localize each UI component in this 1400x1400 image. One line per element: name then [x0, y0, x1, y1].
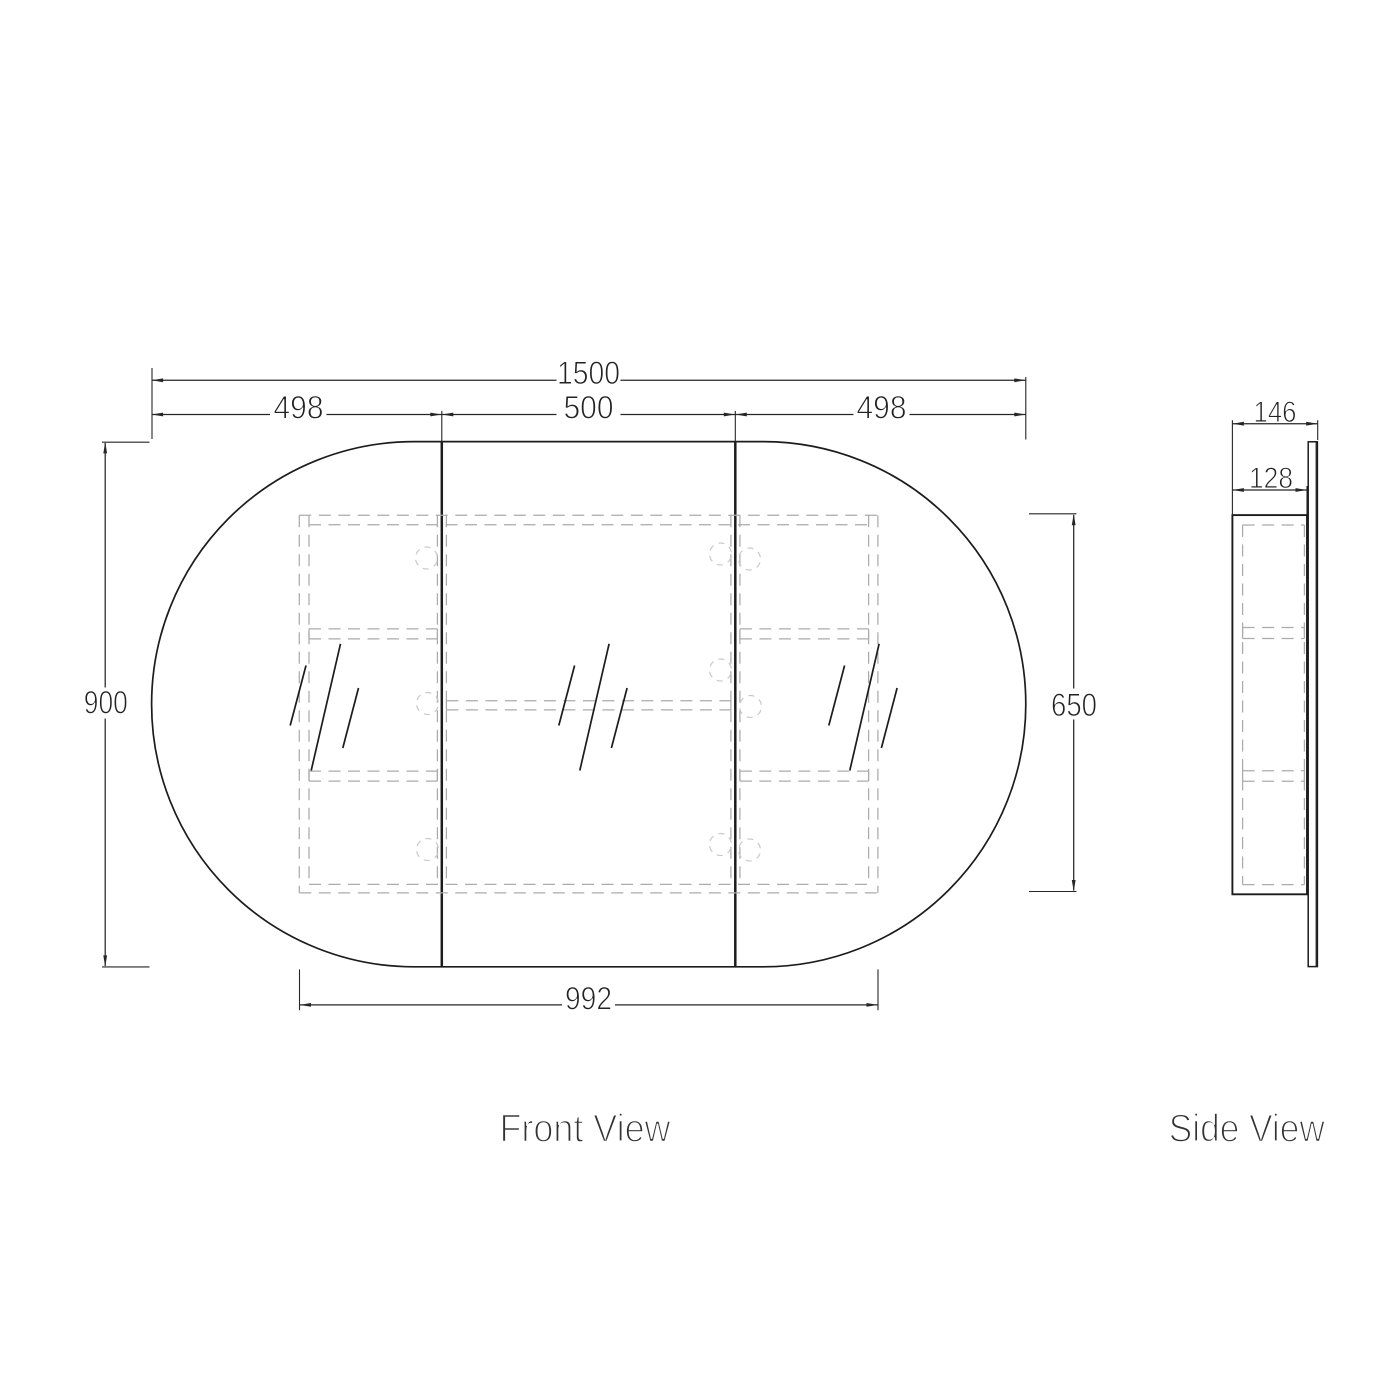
svg-text:Front View: Front View	[500, 1108, 672, 1151]
svg-text:992: 992	[565, 980, 612, 1016]
svg-text:1500: 1500	[557, 355, 620, 391]
svg-text:498: 498	[274, 389, 324, 425]
svg-text:500: 500	[564, 389, 614, 425]
svg-text:146: 146	[1254, 396, 1297, 429]
svg-text:900: 900	[84, 685, 128, 721]
svg-text:498: 498	[857, 389, 907, 425]
svg-text:128: 128	[1249, 462, 1293, 495]
svg-text:Side View: Side View	[1169, 1108, 1326, 1151]
svg-text:650: 650	[1051, 687, 1097, 723]
